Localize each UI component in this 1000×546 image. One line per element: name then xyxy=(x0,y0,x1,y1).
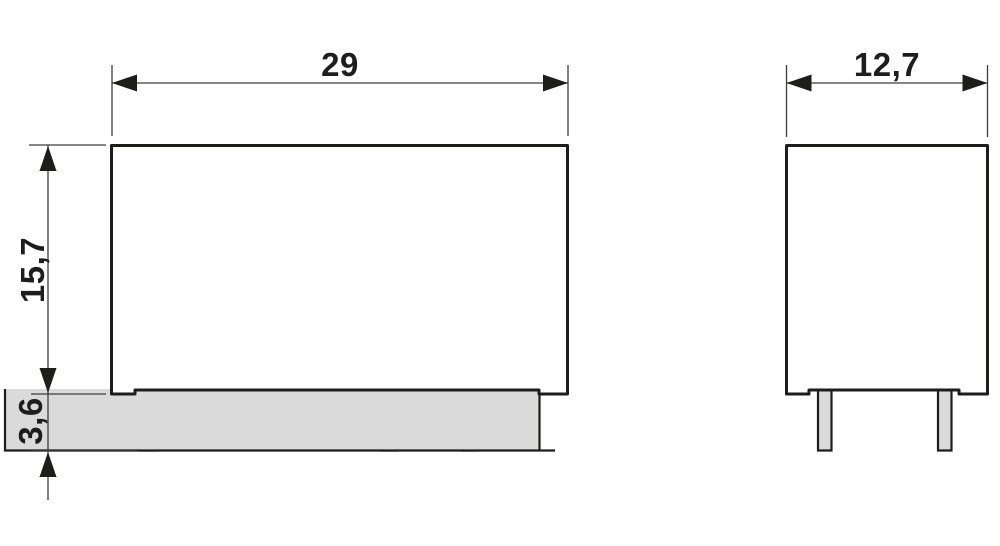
side-view: 12,7 xyxy=(787,46,988,451)
side-pin-1 xyxy=(818,389,832,451)
front-view-body-outline xyxy=(112,146,568,395)
dim-side-width: 12,7 xyxy=(787,46,988,137)
dim-front-width-label: 29 xyxy=(321,46,359,83)
dim-side-width-arrow-left xyxy=(787,75,812,92)
dim-front-pin-arrow-up xyxy=(40,452,57,477)
dim-front-width-arrow-right xyxy=(543,75,568,92)
dim-front-width: 29 xyxy=(112,46,568,136)
dimension-drawing-svg: 29 15,7 3,6 xyxy=(0,0,1000,546)
front-view-pins xyxy=(5,389,555,451)
dim-front-height: 15,7 xyxy=(14,145,106,394)
dim-side-width-label: 12,7 xyxy=(854,46,920,83)
side-pin-2 xyxy=(938,389,952,451)
dim-front-height-arrow-top xyxy=(40,146,57,171)
dim-front-width-arrow-left xyxy=(112,75,137,92)
technical-drawing-canvas: 29 15,7 3,6 xyxy=(0,0,1000,546)
dim-side-width-arrow-right xyxy=(963,75,988,92)
side-view-body-outline xyxy=(787,146,988,395)
side-view-pins xyxy=(818,389,952,451)
front-view: 29 15,7 3,6 xyxy=(5,46,568,500)
dim-front-pin-label: 3,6 xyxy=(12,397,49,444)
dim-front-height-label: 15,7 xyxy=(14,237,51,303)
front-pin-4 xyxy=(5,389,555,451)
